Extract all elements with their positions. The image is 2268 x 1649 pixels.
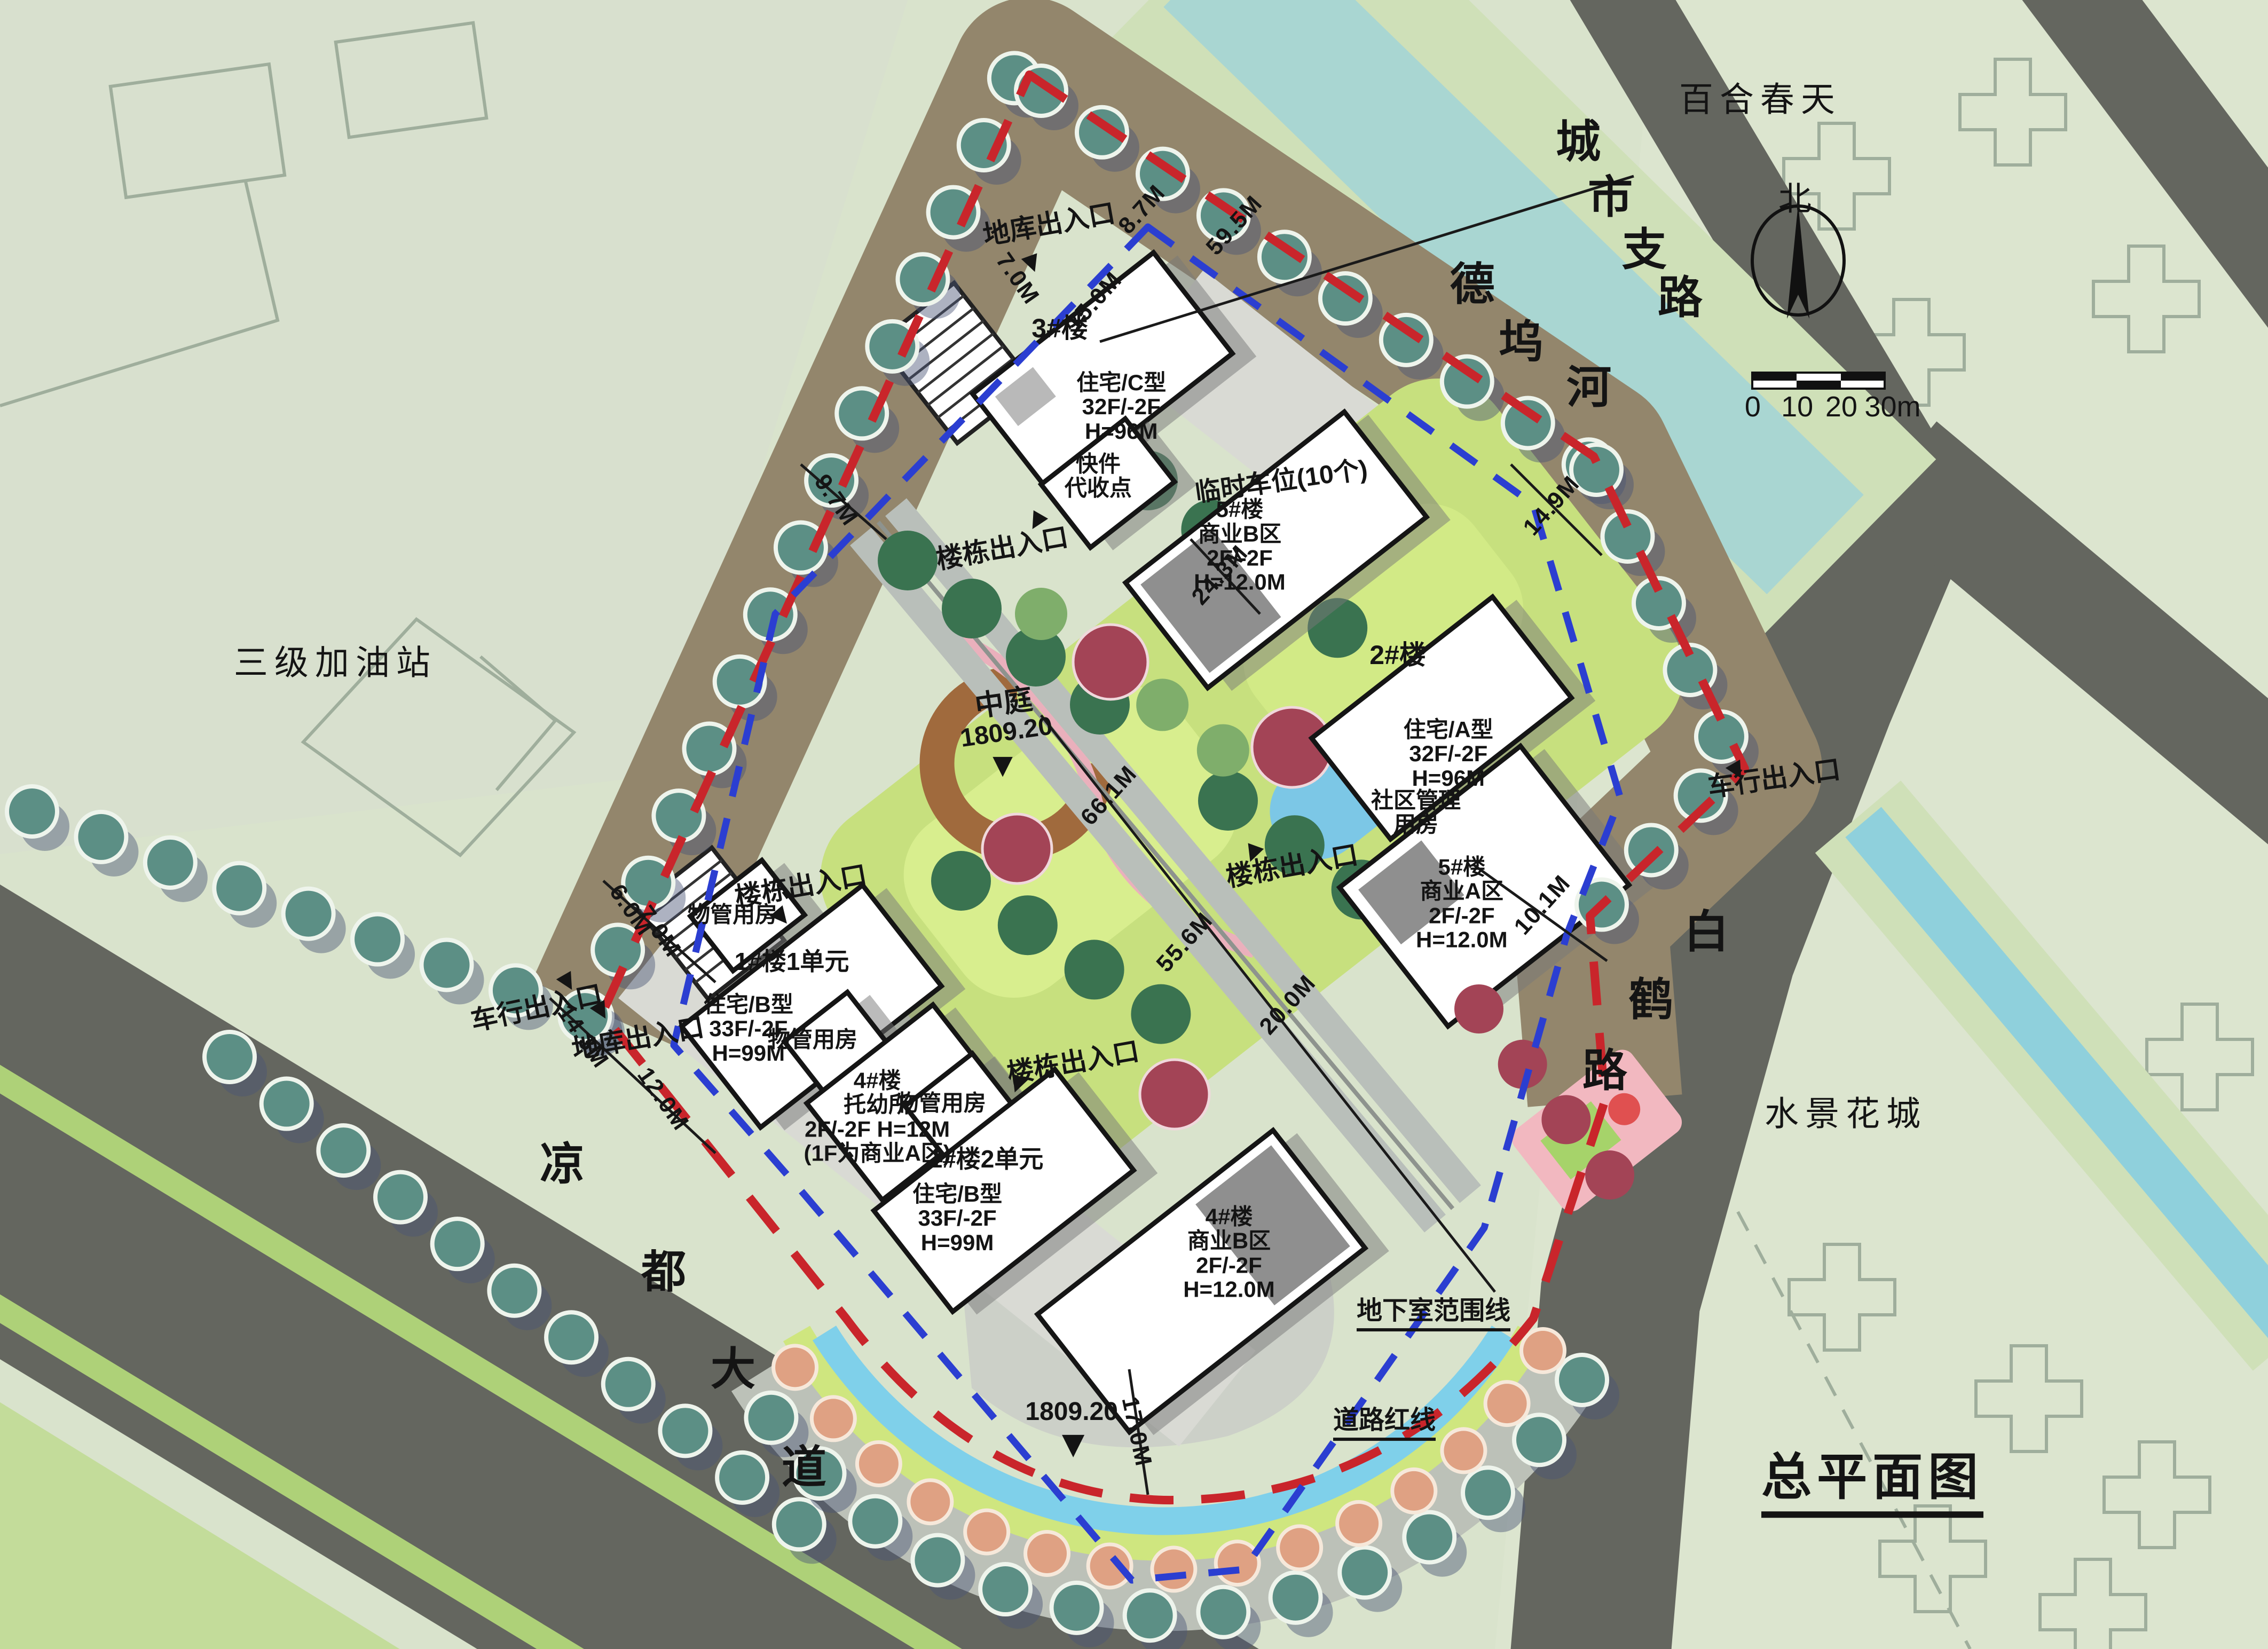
scale-tick: 30m: [1864, 391, 1920, 422]
road-name-liangdudadao-char: 凉: [540, 1140, 585, 1188]
label-building-2: 2#楼: [1369, 641, 1426, 669]
label-building-5a: 5#楼 商业A区 2F/-2F H=12.0M: [1416, 855, 1508, 951]
page-title: 总平面图: [1761, 1450, 1983, 1518]
label-basement-extent: 地下室范围线: [1357, 1297, 1510, 1331]
label-building-2-info: 住宅/A型 32F/-2F H=96M: [1404, 717, 1493, 790]
road-name-baihelu-char: 鹤: [1628, 976, 1673, 1024]
site-master-plan: 地库出入口 ▼ 楼栋出入口 ▼ 楼栋出入口 ▼ 楼栋出入口 ▼ 楼栋出入口 ▼ …: [0, 0, 2268, 1649]
scale-bar: [1752, 373, 1885, 389]
label-baihe-chuntian: 百合春天: [1679, 81, 1841, 118]
scale-tick: 10: [1781, 391, 1813, 422]
road-name-chengshizhilu-char: 市: [1588, 173, 1633, 222]
red-tree: [1140, 1060, 1209, 1129]
label-building-1-unit2: 1#楼2单元: [929, 1146, 1044, 1173]
road-name-liangdudadao-char: 都: [641, 1248, 686, 1297]
road-name-baihelu-char: 路: [1582, 1047, 1627, 1095]
label-property-mgmt-1: 物管用房: [688, 902, 777, 926]
red-tree: [1073, 625, 1148, 699]
river-name-dewuhe-char: 坞: [1499, 318, 1543, 367]
label-building-3-info: 住宅/C型 32F/-2F H=96M: [1076, 370, 1166, 443]
label-property-mgmt-3: 物管用房: [896, 1091, 986, 1115]
road-name-liangdudadao-char: 大: [711, 1345, 755, 1394]
label-gas-station: 三级加油站: [234, 645, 437, 682]
label-community-office: 社区管理 用房: [1371, 788, 1461, 837]
elevation-marker-icon: ▼: [1054, 1424, 1092, 1465]
road-name-chengshizhilu-char: 城: [1556, 118, 1601, 167]
label-south-elevation: 1809.20: [1025, 1398, 1118, 1426]
label-building-1-unit2-info: 住宅/B型 33F/-2F H=99M: [912, 1182, 1002, 1254]
road-name-baihelu-char: 白: [1684, 908, 1729, 957]
label-shuijing-huacheng: 水景花城: [1765, 1095, 1927, 1132]
label-building-1-unit1: 1#楼1单元: [735, 949, 849, 975]
label-building-4b: 4#楼 商业B区 2F/-2F H=12.0M: [1183, 1204, 1275, 1301]
river-name-dewuhe-char: 河: [1566, 364, 1611, 412]
scale-tick: 0: [1745, 391, 1761, 422]
label-property-mgmt-2: 物管用房: [768, 1027, 857, 1051]
road-name-chengshizhilu-char: 支: [1622, 226, 1667, 274]
label-parcel-point: 快件 代收点: [1065, 452, 1132, 501]
scale-tick: 20: [1825, 391, 1857, 422]
river-name-dewuhe-char: 德: [1450, 260, 1495, 309]
elevation-marker-icon: ▼: [986, 747, 1019, 784]
north-label: 北: [1778, 182, 1812, 218]
red-tree: [982, 814, 1052, 883]
road-name-chengshizhilu-char: 路: [1658, 274, 1703, 322]
road-name-liangdudadao-char: 道: [782, 1443, 826, 1492]
label-road-redline: 道路红线: [1333, 1407, 1436, 1441]
